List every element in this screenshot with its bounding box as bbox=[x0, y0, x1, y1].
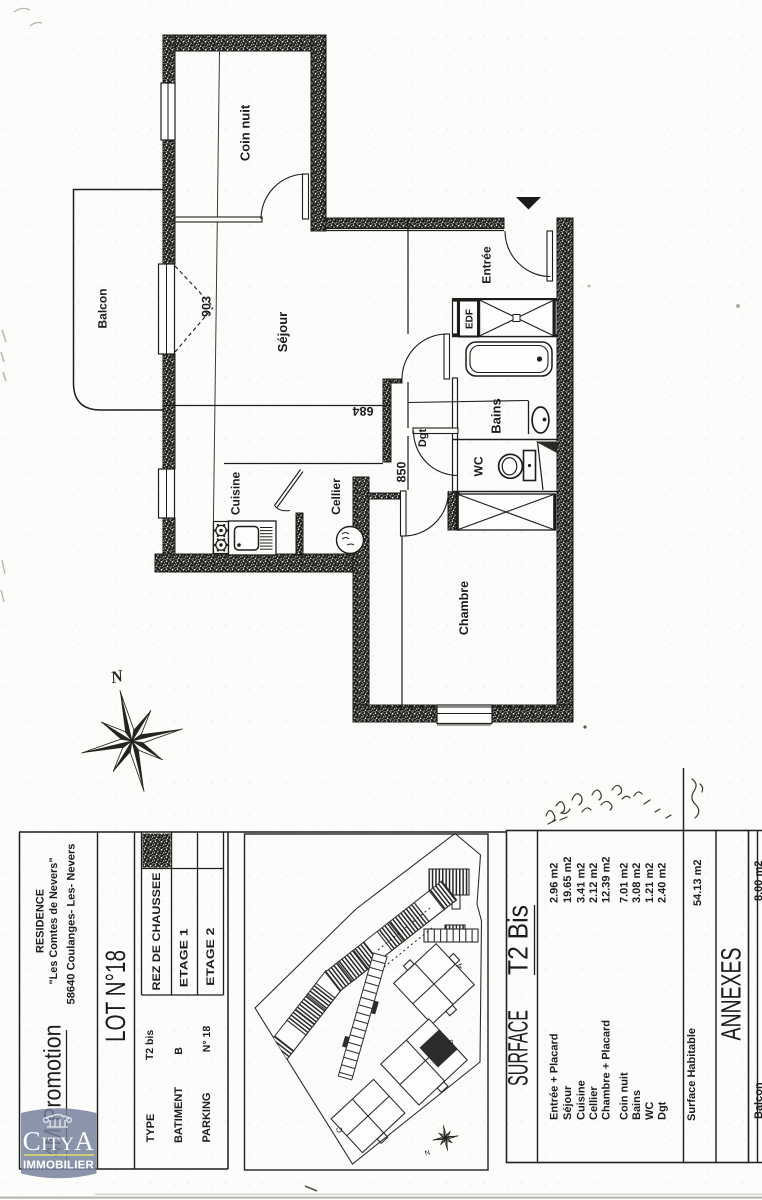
svg-text:1.21 m2: 1.21 m2 bbox=[644, 863, 656, 903]
svg-text:WC: WC bbox=[471, 456, 485, 476]
svg-text:Entrée: Entrée bbox=[479, 246, 493, 284]
svg-text:Bains: Bains bbox=[631, 1090, 643, 1120]
svg-text:C: C bbox=[335, 1127, 344, 1133]
svg-text:Balcon: Balcon bbox=[95, 288, 109, 328]
svg-text:Entrée + Placard: Entrée + Placard bbox=[549, 1033, 561, 1120]
svg-text:3.08 m2: 3.08 m2 bbox=[631, 863, 643, 903]
svg-text:PARKING: PARKING bbox=[201, 1093, 213, 1143]
svg-text:BATIMENT: BATIMENT bbox=[173, 1087, 185, 1143]
svg-text:7.01 m2: 7.01 m2 bbox=[619, 863, 631, 903]
svg-text:Cuisine: Cuisine bbox=[228, 472, 242, 516]
svg-text:Dgt: Dgt bbox=[417, 429, 429, 448]
svg-text:Coin nuit: Coin nuit bbox=[619, 1072, 631, 1120]
svg-text:684: 684 bbox=[353, 404, 374, 418]
svg-text:N° 18: N° 18 bbox=[201, 1026, 213, 1053]
svg-text:Chambre: Chambre bbox=[457, 581, 471, 635]
svg-text:T2 bis: T2 bis bbox=[144, 1030, 156, 1061]
svg-text:Balcon: Balcon bbox=[753, 1082, 762, 1119]
svg-text:IMMOBILIER: IMMOBILIER bbox=[23, 1160, 94, 1172]
svg-text:58640 Coulanges- Les- Nevers: 58640 Coulanges- Les- Nevers bbox=[66, 844, 78, 1005]
svg-text:850: 850 bbox=[395, 462, 409, 483]
svg-text:EDF: EDF bbox=[465, 309, 476, 329]
svg-text:19.65 m2: 19.65 m2 bbox=[562, 857, 574, 903]
svg-text:WC: WC bbox=[644, 1102, 656, 1120]
svg-text:ETAGE 1: ETAGE 1 bbox=[179, 928, 191, 987]
svg-text:2.96 m2: 2.96 m2 bbox=[549, 863, 561, 903]
svg-text:Séjour: Séjour bbox=[562, 1085, 574, 1120]
svg-text:SURFACE: SURFACE bbox=[503, 1010, 534, 1086]
svg-text:2.40 m2: 2.40 m2 bbox=[657, 863, 669, 903]
svg-text:ETAGE 2: ETAGE 2 bbox=[205, 928, 217, 986]
svg-text:B: B bbox=[173, 1047, 185, 1055]
svg-text:Coin nuit: Coin nuit bbox=[238, 104, 253, 161]
svg-text:Séjour: Séjour bbox=[275, 312, 290, 352]
svg-text:903: 903 bbox=[200, 296, 214, 317]
svg-text:TYPE: TYPE bbox=[145, 1114, 157, 1143]
svg-text:RESIDENCE: RESIDENCE bbox=[35, 889, 47, 953]
svg-text:3.41 m2: 3.41 m2 bbox=[576, 863, 588, 903]
svg-text:"Les Comtes de Nevers": "Les Comtes de Nevers" bbox=[48, 858, 60, 985]
svg-text:A: A bbox=[455, 963, 464, 969]
svg-text:Dgt: Dgt bbox=[657, 1101, 669, 1120]
svg-text:B: B bbox=[446, 1039, 455, 1044]
svg-text:REZ DE CHAUSSEE: REZ DE CHAUSSEE bbox=[151, 873, 163, 991]
svg-text:ANNEXES: ANNEXES bbox=[716, 948, 747, 1041]
svg-text:12.39 m2: 12.39 m2 bbox=[601, 857, 613, 903]
svg-text:Cellier: Cellier bbox=[329, 478, 343, 515]
svg-text:Surface Habitable: Surface Habitable bbox=[686, 1028, 698, 1121]
svg-text:LOT N°18: LOT N°18 bbox=[100, 950, 131, 1042]
svg-text:Cellier: Cellier bbox=[588, 1086, 600, 1120]
svg-text:Cuisine: Cuisine bbox=[576, 1080, 588, 1120]
svg-text:Bains: Bains bbox=[489, 398, 504, 433]
svg-text:Chambre + Placard: Chambre + Placard bbox=[601, 1020, 613, 1120]
svg-text:2.12 m2: 2.12 m2 bbox=[588, 863, 600, 903]
svg-text:54.13 m2: 54.13 m2 bbox=[692, 860, 704, 906]
svg-text:T2 Bis: T2 Bis bbox=[503, 905, 534, 975]
svg-text:8.00 m2: 8.00 m2 bbox=[753, 861, 762, 901]
